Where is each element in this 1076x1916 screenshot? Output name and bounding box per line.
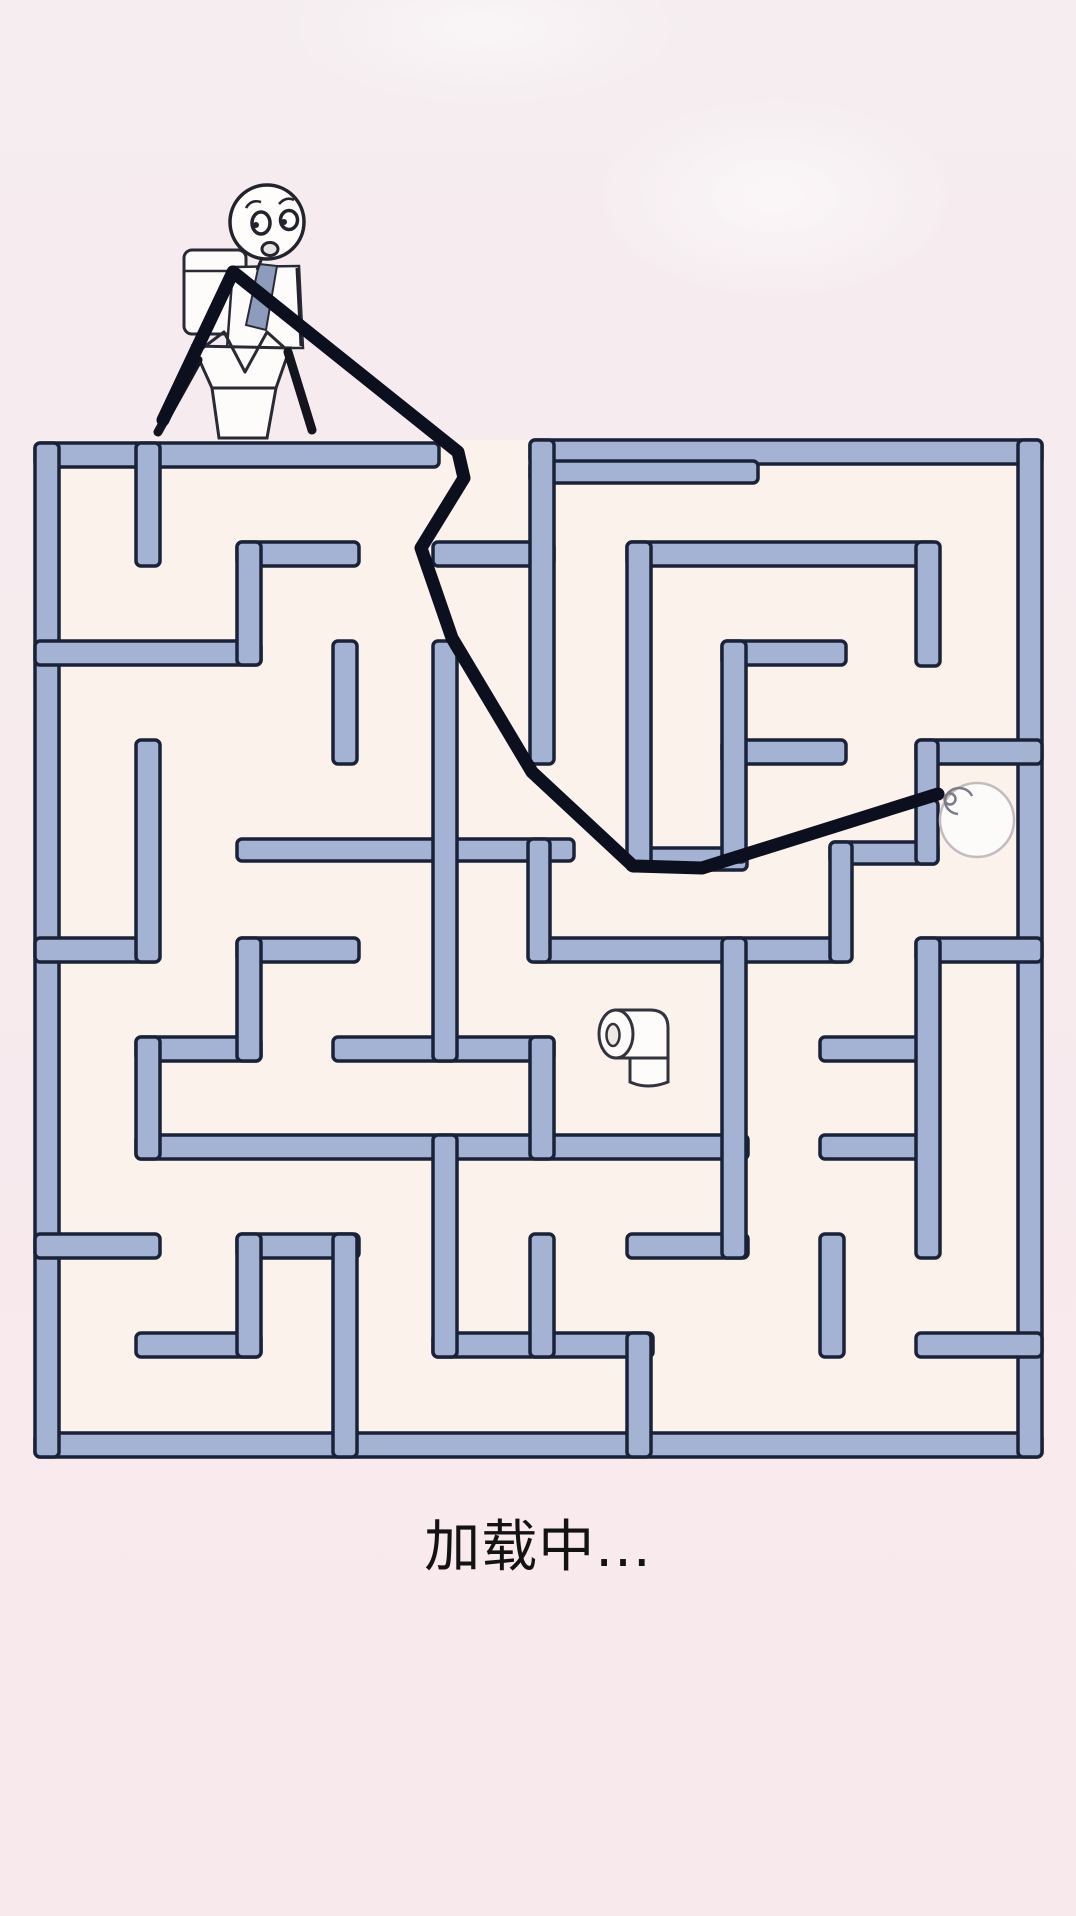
maze-wall <box>433 641 457 1061</box>
maze-wall <box>722 938 746 1258</box>
maze-wall <box>916 938 940 1258</box>
maze-wall <box>528 839 550 962</box>
maze-wall <box>35 443 439 467</box>
toilet-paper-roll <box>599 1010 668 1086</box>
maze-scene <box>0 0 1076 1916</box>
maze-wall <box>237 938 261 1061</box>
maze-wall <box>136 443 160 566</box>
maze-wall <box>627 542 651 870</box>
maze-wall <box>136 740 160 962</box>
maze-wall <box>530 1234 554 1357</box>
toilet-bowl <box>193 332 290 438</box>
maze-wall <box>530 440 554 764</box>
toilet-pedestal <box>212 388 276 438</box>
loading-screen: 加载中... <box>0 0 1076 1916</box>
maze-wall <box>35 1234 160 1258</box>
maze-wall <box>530 461 758 483</box>
maze-wall <box>333 641 357 764</box>
loading-text: 加载中... <box>0 1502 1076 1583</box>
right-leg <box>288 352 312 430</box>
maze-wall <box>530 1037 554 1159</box>
maze-wall <box>433 1135 457 1357</box>
maze-wall <box>237 1234 261 1357</box>
maze-wall <box>916 1333 1042 1357</box>
maze-wall <box>722 641 746 862</box>
maze-wall <box>916 800 938 864</box>
maze-wall <box>333 1234 357 1457</box>
mouth <box>262 243 278 256</box>
maze-wall <box>627 1333 651 1457</box>
maze-wall <box>830 842 852 962</box>
maze-wall <box>627 542 937 566</box>
thread-path <box>233 272 938 868</box>
maze-wall <box>820 1234 844 1357</box>
maze-wall <box>35 1433 1042 1457</box>
maze-wall <box>35 641 261 665</box>
maze-wall <box>136 1037 160 1159</box>
maze-wall <box>237 542 261 665</box>
maze-wall <box>916 542 940 666</box>
maze-wall <box>530 938 848 962</box>
maze-wall <box>237 839 574 861</box>
maze-walls <box>35 440 1042 1457</box>
